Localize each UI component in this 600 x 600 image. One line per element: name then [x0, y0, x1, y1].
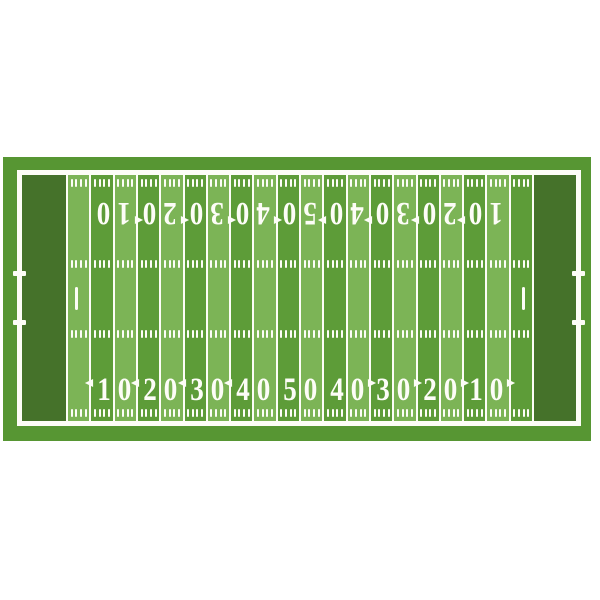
yard-number-bottom: 20 — [143, 374, 177, 407]
hash-mark — [350, 260, 352, 268]
yard-number-top: 20 — [423, 196, 457, 229]
hash-mark — [80, 409, 82, 417]
direction-arrow-icon — [131, 379, 139, 387]
hash-mark — [425, 330, 427, 338]
yard-line — [322, 175, 324, 421]
football-field-illustration: 101020203030404050504040303020201010 — [0, 0, 600, 600]
hash-mark — [518, 409, 520, 417]
hash-mark — [192, 409, 194, 417]
hash-mark — [467, 330, 469, 338]
hash-mark — [145, 260, 147, 268]
hash-mark — [304, 179, 306, 187]
hash-mark — [308, 179, 310, 187]
hash-mark — [453, 179, 455, 187]
hash-mark — [262, 260, 264, 268]
hash-mark — [374, 179, 376, 187]
hash-mark — [341, 330, 343, 338]
yard-number-digit: 2 — [143, 374, 156, 407]
hash-mark — [411, 330, 413, 338]
hash-mark — [215, 330, 217, 338]
hash-mark — [178, 179, 180, 187]
yard-number-digit: 2 — [443, 196, 456, 229]
hash-mark — [108, 260, 110, 268]
hash-mark — [364, 409, 366, 417]
hash-mark — [341, 179, 343, 187]
hash-mark — [103, 330, 105, 338]
hash-mark — [448, 179, 450, 187]
hash-mark — [350, 179, 352, 187]
direction-arrow-icon — [274, 216, 282, 224]
yard-number-top: 30 — [376, 196, 410, 229]
yard-number-bottom: 40 — [330, 374, 364, 407]
hash-mark — [360, 409, 362, 417]
hash-mark — [108, 330, 110, 338]
hash-mark — [495, 330, 497, 338]
yard-number-digit: 0 — [304, 374, 317, 407]
direction-arrow-icon — [135, 216, 143, 224]
hash-mark — [332, 179, 334, 187]
hash-mark — [201, 409, 203, 417]
hash-mark — [71, 409, 73, 417]
hash-mark — [234, 260, 236, 268]
yard-number-digit: 1 — [97, 374, 110, 407]
hash-mark — [187, 409, 189, 417]
hash-mark — [131, 179, 133, 187]
hash-mark — [75, 260, 77, 268]
hash-mark — [145, 330, 147, 338]
hash-mark — [150, 260, 152, 268]
hash-mark — [248, 409, 250, 417]
hash-mark — [481, 179, 483, 187]
hash-mark — [336, 260, 338, 268]
hash-mark — [285, 330, 287, 338]
hash-mark — [145, 409, 147, 417]
hash-mark — [248, 260, 250, 268]
hash-mark — [94, 409, 96, 417]
yard-number-digit: 0 — [376, 196, 389, 229]
hash-mark — [383, 179, 385, 187]
yard-number-top: 30 — [190, 196, 224, 229]
hash-mark — [434, 260, 436, 268]
hash-mark — [150, 409, 152, 417]
yard-number-top: 20 — [143, 196, 177, 229]
hash-mark — [364, 330, 366, 338]
hash-mark — [257, 260, 259, 268]
hash-mark — [420, 179, 422, 187]
hash-mark — [304, 330, 306, 338]
hash-mark — [262, 179, 264, 187]
yard-number-digit: 0 — [490, 374, 503, 407]
hash-mark — [374, 409, 376, 417]
hash-mark — [467, 260, 469, 268]
yard-number-digit: 0 — [237, 196, 250, 229]
hash-mark — [80, 330, 82, 338]
hash-mark — [187, 260, 189, 268]
hash-mark — [523, 260, 525, 268]
hash-mark — [155, 330, 157, 338]
yard-number-digit: 4 — [350, 196, 363, 229]
hash-mark — [257, 409, 259, 417]
direction-arrow-icon — [457, 216, 465, 224]
hash-mark — [332, 409, 334, 417]
hash-mark — [99, 260, 101, 268]
hash-mark — [374, 260, 376, 268]
yard-number-bottom: 50 — [283, 374, 317, 407]
hash-mark — [80, 260, 82, 268]
hash-mark — [99, 179, 101, 187]
hash-mark — [201, 260, 203, 268]
yard-number-digit: 0 — [350, 374, 363, 407]
hash-mark — [304, 409, 306, 417]
hash-mark — [308, 260, 310, 268]
hash-mark — [85, 409, 87, 417]
hash-mark — [262, 330, 264, 338]
yard-line — [276, 175, 278, 421]
hash-mark — [178, 260, 180, 268]
yard-number-digit: 0 — [190, 196, 203, 229]
hash-mark — [127, 260, 129, 268]
hash-mark — [257, 330, 259, 338]
hash-mark — [378, 330, 380, 338]
hash-mark — [504, 409, 506, 417]
hash-mark — [94, 179, 96, 187]
hash-mark — [85, 260, 87, 268]
yard-number-digit: 5 — [304, 196, 317, 229]
hash-mark — [495, 179, 497, 187]
hash-mark — [411, 409, 413, 417]
hash-mark — [108, 179, 110, 187]
hash-mark — [448, 330, 450, 338]
direction-arrow-icon — [461, 379, 469, 387]
hash-mark — [178, 330, 180, 338]
hash-mark — [122, 409, 124, 417]
hash-mark — [262, 409, 264, 417]
yard-number-top: 40 — [330, 196, 364, 229]
hash-mark — [318, 260, 320, 268]
yard-number-digit: 2 — [423, 374, 436, 407]
hash-mark — [220, 179, 222, 187]
hash-mark — [271, 260, 273, 268]
hash-mark — [99, 330, 101, 338]
hash-mark — [243, 179, 245, 187]
hash-mark — [318, 409, 320, 417]
hash-mark — [108, 409, 110, 417]
hash-mark — [518, 330, 520, 338]
hash-mark — [308, 330, 310, 338]
yard-number-digit: 4 — [257, 196, 270, 229]
hash-mark — [117, 260, 119, 268]
hash-mark — [313, 330, 315, 338]
hash-mark — [388, 179, 390, 187]
hash-mark — [103, 409, 105, 417]
hash-mark — [364, 179, 366, 187]
hash-mark — [220, 330, 222, 338]
hash-mark — [313, 179, 315, 187]
hash-mark — [406, 179, 408, 187]
hash-mark — [402, 260, 404, 268]
hash-mark — [332, 260, 334, 268]
hash-mark — [187, 330, 189, 338]
hash-mark — [332, 330, 334, 338]
hash-mark — [411, 179, 413, 187]
yard-number-digit: 3 — [397, 196, 410, 229]
yard-number-digit: 0 — [423, 196, 436, 229]
hash-mark — [243, 409, 245, 417]
field-inner: 101020203030404050504040303020201010 — [22, 175, 576, 421]
hash-mark — [397, 179, 399, 187]
hash-mark — [141, 330, 143, 338]
hash-mark — [388, 330, 390, 338]
end-zone-left — [22, 175, 67, 421]
hash-mark — [490, 179, 492, 187]
hash-mark — [406, 260, 408, 268]
yard-number-bottom: 40 — [237, 374, 271, 407]
hash-mark — [406, 409, 408, 417]
hash-mark — [434, 330, 436, 338]
hash-mark — [122, 260, 124, 268]
hash-mark — [318, 330, 320, 338]
hash-mark — [169, 330, 171, 338]
hash-mark — [257, 179, 259, 187]
direction-arrow-icon — [368, 379, 376, 387]
hash-mark — [141, 409, 143, 417]
hash-mark — [285, 409, 287, 417]
hash-mark — [495, 260, 497, 268]
yard-number-digit: 4 — [237, 374, 250, 407]
hash-mark — [141, 260, 143, 268]
direction-arrow-icon — [224, 379, 232, 387]
hash-mark — [285, 260, 287, 268]
hash-mark — [215, 260, 217, 268]
hash-mark — [453, 260, 455, 268]
hash-mark — [187, 179, 189, 187]
direction-arrow-icon — [181, 216, 189, 224]
yard-number-digit: 3 — [210, 196, 223, 229]
hash-mark — [271, 409, 273, 417]
hash-mark — [448, 260, 450, 268]
hash-mark — [122, 330, 124, 338]
hash-mark — [350, 330, 352, 338]
hash-mark — [402, 409, 404, 417]
hash-mark — [327, 330, 329, 338]
hash-mark — [425, 409, 427, 417]
hash-mark — [290, 409, 292, 417]
hash-mark — [490, 330, 492, 338]
hash-mark — [481, 260, 483, 268]
hash-mark — [523, 179, 525, 187]
hash-mark — [173, 260, 175, 268]
hash-mark — [402, 330, 404, 338]
yard-number-digit: 2 — [164, 196, 177, 229]
hash-mark — [94, 260, 96, 268]
hash-mark — [388, 260, 390, 268]
hash-mark — [397, 330, 399, 338]
hash-mark — [243, 330, 245, 338]
hash-mark — [71, 260, 73, 268]
hash-mark — [75, 409, 77, 417]
hash-mark — [155, 409, 157, 417]
hash-mark — [103, 260, 105, 268]
hash-mark — [290, 330, 292, 338]
hash-mark — [155, 179, 157, 187]
hash-mark — [173, 409, 175, 417]
hash-mark — [155, 260, 157, 268]
goal-line — [532, 175, 534, 421]
hash-mark — [164, 260, 166, 268]
goal-line — [66, 175, 68, 421]
field-boundary-line: 101020203030404050504040303020201010 — [17, 170, 581, 426]
hash-mark — [85, 330, 87, 338]
yard-number-top: 40 — [237, 196, 271, 229]
yard-number-bottom: 30 — [376, 374, 410, 407]
hash-mark — [220, 260, 222, 268]
hash-mark — [150, 179, 152, 187]
hash-mark — [75, 179, 77, 187]
hash-mark — [243, 260, 245, 268]
hash-mark — [131, 260, 133, 268]
hash-mark — [336, 179, 338, 187]
hash-mark — [360, 179, 362, 187]
hash-mark — [290, 179, 292, 187]
hash-mark — [518, 260, 520, 268]
end-zone-right — [533, 175, 576, 421]
yard-number-top: 50 — [283, 196, 317, 229]
hash-mark — [523, 409, 525, 417]
yard-number-digit: 0 — [257, 374, 270, 407]
hash-mark — [201, 330, 203, 338]
hash-mark — [313, 409, 315, 417]
hash-mark — [127, 330, 129, 338]
hash-mark — [383, 330, 385, 338]
hash-mark — [383, 260, 385, 268]
yard-number-top: 10 — [470, 196, 504, 229]
hash-mark — [448, 409, 450, 417]
hash-mark — [490, 409, 492, 417]
yard-number-digit: 0 — [164, 374, 177, 407]
hash-mark — [192, 179, 194, 187]
yard-number-digit: 4 — [330, 374, 343, 407]
hash-mark — [504, 330, 506, 338]
hash-mark — [71, 179, 73, 187]
hash-mark — [99, 409, 101, 417]
hash-mark — [192, 260, 194, 268]
conversion-mark-left — [75, 287, 78, 310]
yard-number-digit: 0 — [443, 374, 456, 407]
hash-mark — [285, 179, 287, 187]
hash-mark — [364, 260, 366, 268]
hash-mark — [355, 409, 357, 417]
direction-arrow-icon — [178, 379, 186, 387]
hash-mark — [169, 409, 171, 417]
hash-mark — [117, 330, 119, 338]
hash-mark — [178, 409, 180, 417]
hash-mark — [80, 179, 82, 187]
hash-mark — [476, 409, 478, 417]
hash-mark — [234, 330, 236, 338]
hash-mark — [467, 179, 469, 187]
hash-mark — [271, 330, 273, 338]
yard-number-digit: 1 — [470, 374, 483, 407]
hash-mark — [425, 260, 427, 268]
hash-mark — [169, 179, 171, 187]
hash-mark — [355, 330, 357, 338]
hash-mark — [169, 260, 171, 268]
hash-mark — [131, 330, 133, 338]
hash-mark — [504, 179, 506, 187]
hash-mark — [131, 409, 133, 417]
yard-number-digit: 0 — [117, 374, 130, 407]
hash-mark — [360, 260, 362, 268]
hash-mark — [145, 179, 147, 187]
hash-mark — [215, 179, 217, 187]
hash-mark — [164, 179, 166, 187]
hash-mark — [420, 260, 422, 268]
hash-mark — [411, 260, 413, 268]
yard-number-top: 10 — [97, 196, 131, 229]
hash-mark — [117, 179, 119, 187]
yard-number-digit: 5 — [283, 374, 296, 407]
hash-mark — [234, 179, 236, 187]
yard-number-digit: 0 — [97, 196, 110, 229]
hash-mark — [434, 179, 436, 187]
hash-mark — [103, 179, 105, 187]
hash-mark — [248, 330, 250, 338]
direction-arrow-icon — [317, 216, 325, 224]
hash-mark — [355, 179, 357, 187]
sideline-tick-right — [572, 271, 585, 276]
hash-mark — [327, 179, 329, 187]
hash-mark — [164, 409, 166, 417]
yard-number-digit: 1 — [490, 196, 503, 229]
hash-mark — [164, 330, 166, 338]
hash-mark — [327, 260, 329, 268]
hash-mark — [290, 260, 292, 268]
yard-number-digit: 0 — [330, 196, 343, 229]
sideline-tick-left — [13, 320, 26, 325]
hash-mark — [341, 260, 343, 268]
hash-mark — [397, 409, 399, 417]
hash-mark — [327, 409, 329, 417]
hash-mark — [127, 409, 129, 417]
hash-mark — [85, 179, 87, 187]
hash-mark — [397, 260, 399, 268]
hash-mark — [71, 330, 73, 338]
hash-mark — [360, 330, 362, 338]
yard-number-bottom: 30 — [190, 374, 224, 407]
hash-mark — [318, 179, 320, 187]
hash-mark — [234, 409, 236, 417]
hash-mark — [383, 409, 385, 417]
hash-mark — [308, 409, 310, 417]
hash-mark — [173, 330, 175, 338]
yard-number-digit: 0 — [470, 196, 483, 229]
hash-mark — [490, 260, 492, 268]
hash-mark — [355, 260, 357, 268]
hash-mark — [467, 409, 469, 417]
hash-mark — [173, 179, 175, 187]
direction-arrow-icon — [411, 216, 419, 224]
hash-mark — [378, 179, 380, 187]
hash-mark — [388, 409, 390, 417]
yard-number-bottom: 20 — [423, 374, 457, 407]
hash-mark — [336, 330, 338, 338]
hash-mark — [75, 330, 77, 338]
direction-arrow-icon — [414, 379, 422, 387]
hash-mark — [378, 260, 380, 268]
hash-mark — [271, 179, 273, 187]
hash-mark — [481, 330, 483, 338]
conversion-mark-right — [522, 287, 525, 310]
